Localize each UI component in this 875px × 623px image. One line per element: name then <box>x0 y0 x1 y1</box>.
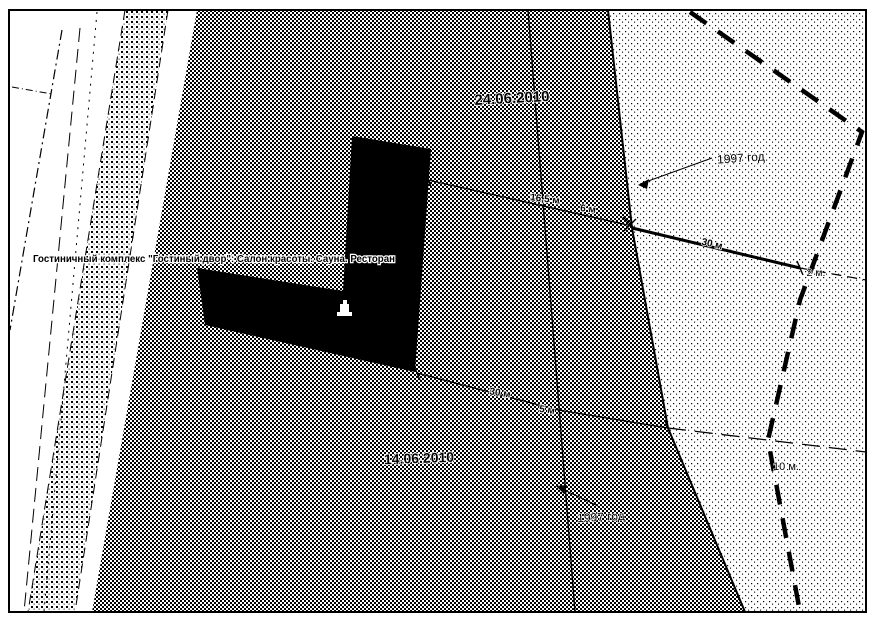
dimension-label-2: 6 м <box>579 203 596 216</box>
hotel-complex-label: Гостиничный комплекс "Гостиный двор": Са… <box>33 253 395 265</box>
dimension-label-7: 10 м. <box>773 461 799 473</box>
survey-date-bottom-label: 14.06.2010 <box>384 449 455 467</box>
dimension-label-6: 2 м. <box>807 267 826 279</box>
site-plan-svg: 24.06.2010 14.06.2010 Гостиничный компле… <box>0 0 875 623</box>
year-1997-bottom-label: 1997 год <box>577 509 625 525</box>
map-canvas: 24.06.2010 14.06.2010 Гостиничный компле… <box>0 0 875 623</box>
